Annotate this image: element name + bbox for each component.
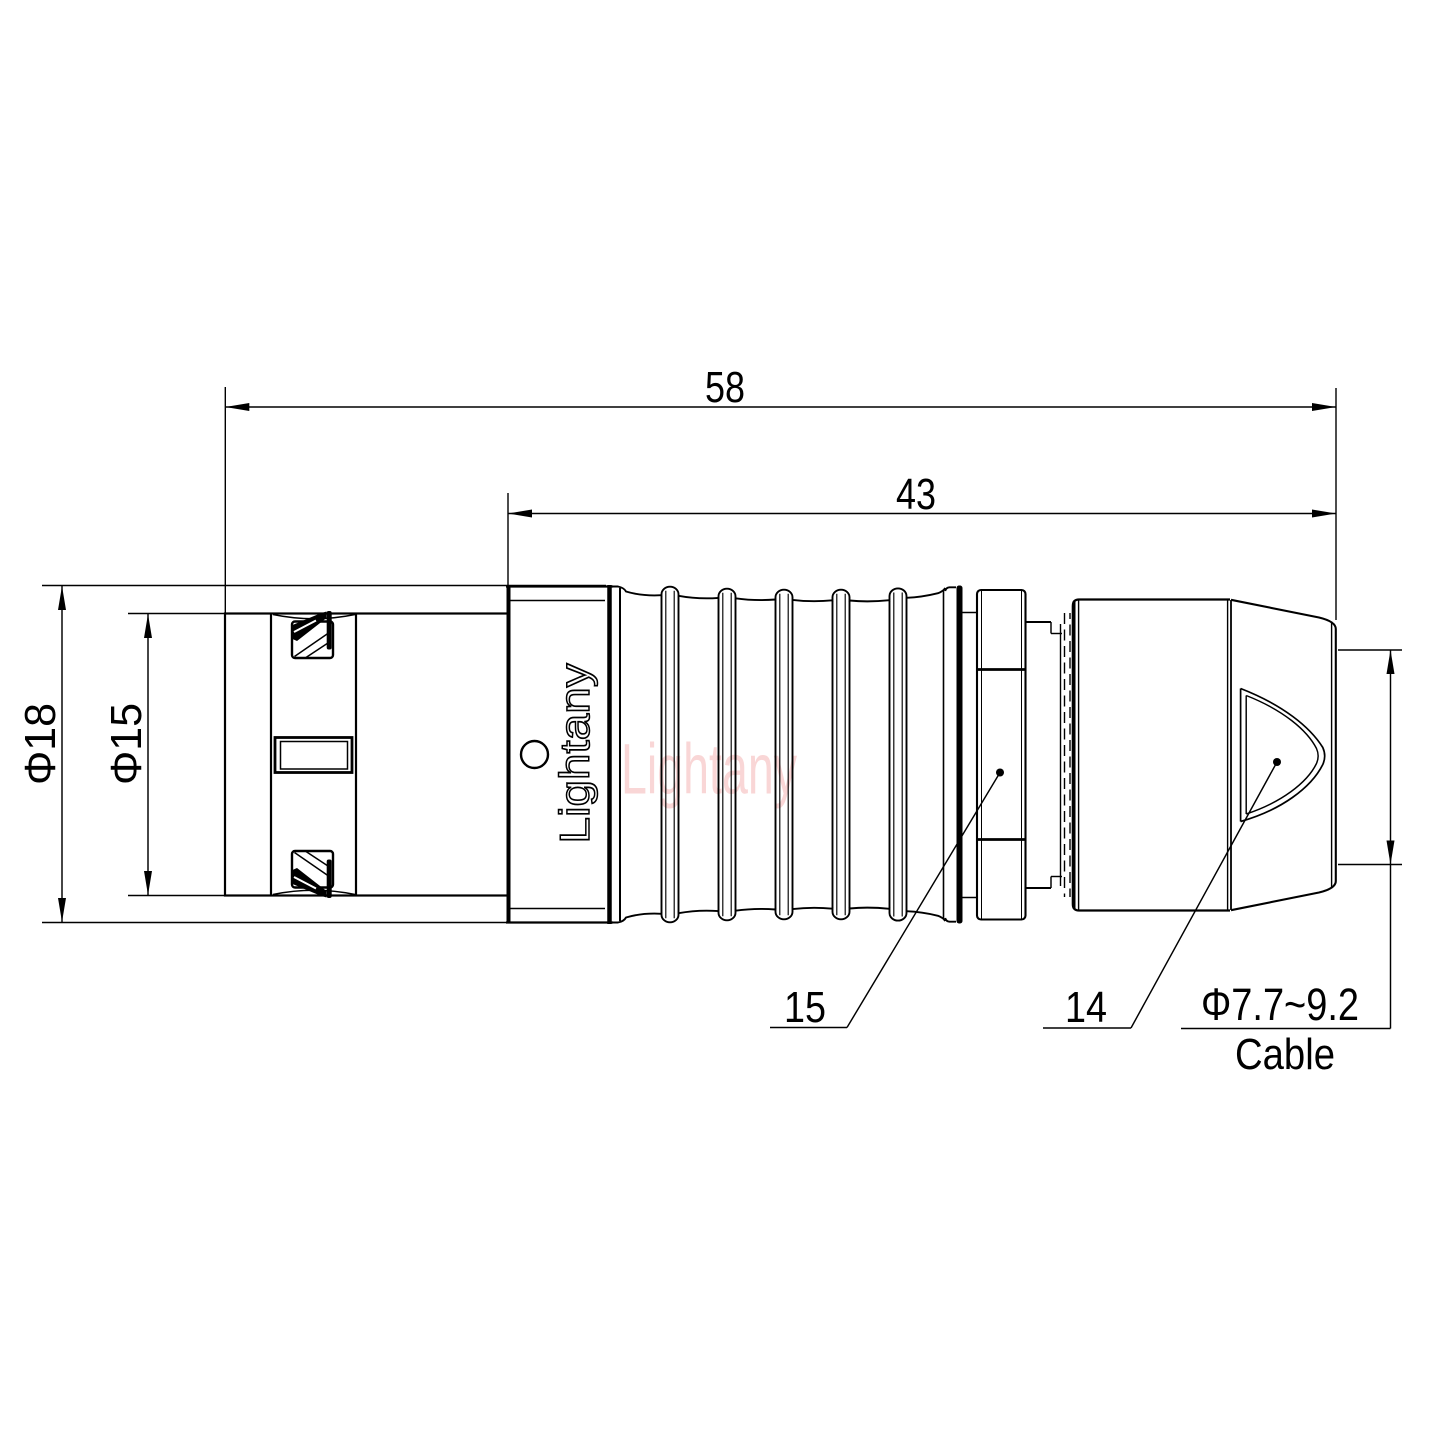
svg-text:Cable: Cable xyxy=(1235,1030,1335,1079)
svg-text:Φ7.7~9.2: Φ7.7~9.2 xyxy=(1201,979,1359,1030)
svg-text:15: 15 xyxy=(784,983,826,1032)
svg-text:43: 43 xyxy=(896,470,936,519)
svg-text:14: 14 xyxy=(1065,983,1107,1032)
svg-text:Lightany: Lightany xyxy=(551,664,598,844)
svg-text:58: 58 xyxy=(705,363,745,412)
svg-text:Φ18: Φ18 xyxy=(16,703,65,785)
svg-text:Φ15: Φ15 xyxy=(102,703,151,785)
svg-text:Lightany: Lightany xyxy=(621,731,797,810)
